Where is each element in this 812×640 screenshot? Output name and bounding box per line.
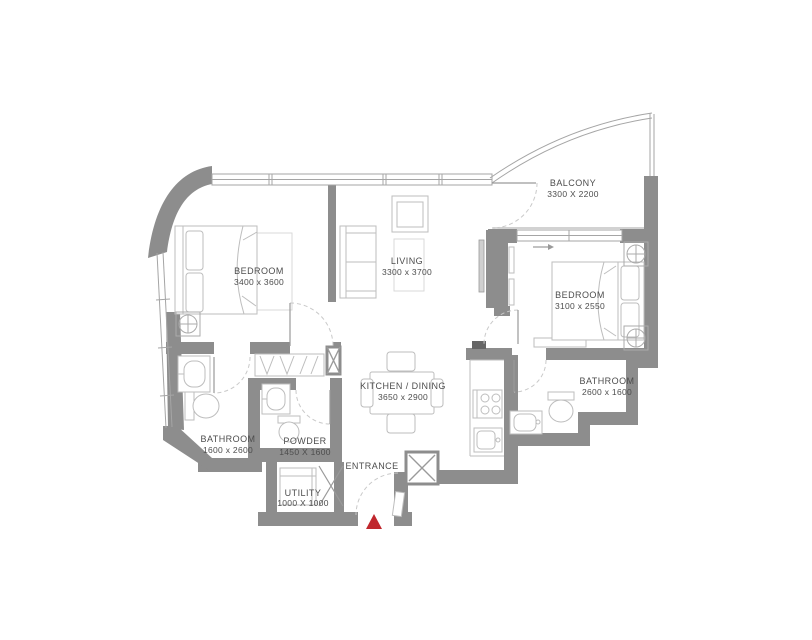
wall: [266, 460, 277, 514]
svg-text:BEDROOM: BEDROOM: [234, 266, 284, 276]
entrance-label: ENTRANCE: [345, 461, 398, 471]
service-shaft: [406, 452, 438, 484]
room-label-powder: POWDER 1450 X 1600: [279, 436, 331, 457]
svg-text:2600 x 1600: 2600 x 1600: [582, 387, 632, 397]
room-label-bathroom-1: BATHROOM 1600 x 2600: [201, 434, 256, 455]
closet-shelf: [509, 247, 514, 273]
svg-text:BEDROOM: BEDROOM: [555, 290, 605, 300]
entrance-marker: [366, 514, 382, 529]
svg-text:3650 x 2900: 3650 x 2900: [378, 392, 428, 402]
wall: [644, 176, 658, 368]
svg-text:1600 x 2600: 1600 x 2600: [203, 445, 253, 455]
svg-text:POWDER: POWDER: [283, 436, 326, 446]
wall: [518, 433, 590, 446]
svg-text:BATHROOM: BATHROOM: [201, 434, 256, 444]
wall: [330, 378, 342, 458]
svg-text:1000 X 1000: 1000 X 1000: [277, 498, 329, 508]
floor-plan-page: BEDROOM 3400 x 3600 LIVING 3300 x 3700 B…: [0, 0, 812, 640]
svg-text:3300 X 2200: 3300 X 2200: [547, 189, 599, 199]
svg-text:3300 x 3700: 3300 x 3700: [382, 267, 432, 277]
sink-bathroom-2: [510, 411, 542, 434]
room-label-bathroom-2: BATHROOM 2600 x 1600: [580, 376, 635, 397]
shaft-column: [327, 347, 340, 374]
wall: [250, 342, 290, 354]
stove: [473, 390, 502, 418]
wall: [328, 184, 336, 302]
wardrobe: [255, 354, 324, 376]
wall: [488, 229, 517, 243]
svg-text:KITCHEN / DINING: KITCHEN / DINING: [360, 381, 446, 391]
room-label-bedroom-2: BEDROOM 3100 x 2550: [555, 290, 605, 311]
closet-shelf: [509, 279, 514, 305]
armchair: [392, 196, 428, 232]
arrow-icon: [548, 244, 554, 250]
sink-powder: [262, 384, 290, 414]
room-label-balcony: BALCONY 3300 X 2200: [547, 178, 599, 199]
toilet-bathroom-1: [185, 392, 219, 420]
toilet-bathroom-2: [548, 392, 574, 422]
room-label-bedroom-1: BEDROOM 3400 x 3600: [234, 266, 284, 287]
room-label-living: LIVING 3300 x 3700: [382, 256, 432, 277]
wall: [166, 342, 214, 354]
svg-text:BALCONY: BALCONY: [550, 178, 596, 188]
svg-text:BATHROOM: BATHROOM: [580, 376, 635, 386]
sink-bathroom-1: [178, 356, 210, 392]
wall: [466, 348, 512, 360]
sofa: [340, 226, 376, 298]
tv-unit: [479, 240, 484, 292]
room-label-utility: UTILITY 1000 X 1000: [277, 488, 329, 508]
svg-text:UTILITY: UTILITY: [285, 488, 322, 498]
wall: [436, 470, 518, 484]
svg-text:1450 X 1600: 1450 X 1600: [279, 447, 331, 457]
wall: [620, 229, 644, 243]
svg-text:LIVING: LIVING: [391, 256, 423, 266]
kitchen-sink: [474, 428, 502, 452]
svg-text:3100 x 2550: 3100 x 2550: [555, 301, 605, 311]
floor-plan-svg: BEDROOM 3400 x 3600 LIVING 3300 x 3700 B…: [0, 0, 812, 640]
wall: [258, 512, 358, 526]
svg-text:3400 x 3600: 3400 x 3600: [234, 277, 284, 287]
